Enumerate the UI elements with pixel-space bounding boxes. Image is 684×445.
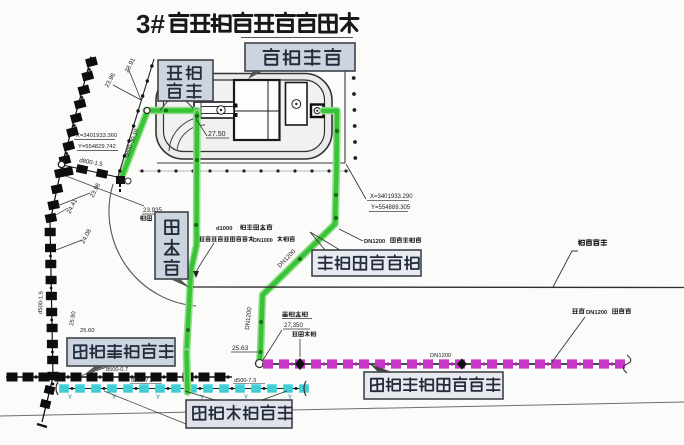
svg-text:DN1200: DN1200: [586, 310, 607, 316]
svg-text:DN1000: DN1000: [253, 238, 273, 244]
svg-text:27.50: 27.50: [208, 131, 226, 138]
svg-text:Y=554829.742: Y=554829.742: [78, 144, 116, 150]
svg-text:d500-1.5: d500-1.5: [38, 291, 45, 314]
svg-text:3#: 3#: [136, 9, 165, 39]
svg-text:d1000: d1000: [216, 226, 232, 232]
svg-text:Y: Y: [68, 395, 72, 401]
svg-text:X=3401933.290: X=3401933.290: [370, 194, 413, 200]
svg-text:Y: Y: [156, 395, 160, 401]
svg-text:DN1200: DN1200: [364, 239, 385, 245]
svg-text:X=3401933.360: X=3401933.360: [76, 133, 117, 139]
svg-text:d500-7.3: d500-7.3: [234, 378, 256, 384]
svg-text:d500-7.3: d500-7.3: [131, 378, 153, 384]
svg-text:25.60: 25.60: [80, 328, 95, 334]
svg-text:27,350: 27,350: [284, 322, 303, 329]
svg-text:Y=554889.305: Y=554889.305: [371, 205, 411, 211]
svg-text:DN1200: DN1200: [430, 353, 451, 359]
svg-text:d500-0.7: d500-0.7: [106, 367, 128, 373]
svg-text:25.63: 25.63: [232, 345, 249, 352]
